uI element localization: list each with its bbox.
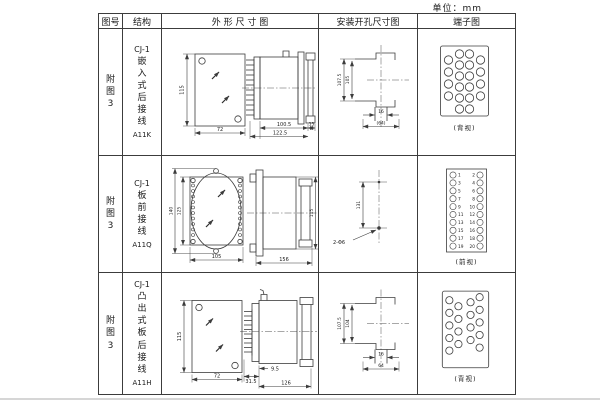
front-view-a11k (195, 54, 245, 126)
terminal-pins-a11q: 1234567891011121314151617181920 (450, 172, 483, 250)
terminal-cell-row3: (背视) (418, 273, 515, 394)
svg-text:15: 15 (458, 228, 464, 234)
front-terminals-a11q (192, 184, 242, 237)
svg-text:14: 14 (470, 220, 476, 226)
mounting-drawing-a11q: 131 2-Φ6 (319, 156, 417, 272)
dim-label: 2-Φ6 (333, 240, 345, 246)
fig-no-cell-row1: 附图3 (99, 29, 123, 156)
structure-cell-row1: CJ-1 嵌入式后接线 A11K (123, 29, 162, 156)
terminal-cell-row1: (背视) (418, 29, 515, 156)
svg-text:5: 5 (458, 189, 461, 195)
dim-label: 140 (169, 207, 175, 216)
fig-no-row2: 附图3 (106, 196, 116, 232)
svg-text:3: 3 (458, 181, 461, 187)
mounting-cell-row3: 107.5 104 16 64 (319, 273, 418, 394)
dim-label: 72 (217, 127, 223, 133)
dim-label: 16 (378, 109, 384, 115)
dim-label: 16 (378, 352, 384, 358)
mounting-cell-row2: 131 2-Φ6 (319, 156, 418, 273)
svg-text:4: 4 (472, 181, 475, 187)
dim-label: 126 (281, 381, 291, 387)
svg-text:8: 8 (472, 196, 475, 202)
front-view-a11h (192, 301, 242, 373)
svg-text:2: 2 (472, 173, 475, 179)
header-fig-no: 图号 (99, 14, 123, 29)
svg-text:11: 11 (458, 212, 464, 218)
fig-no-row1: 附图3 (106, 74, 116, 110)
outline-drawing-a11h: 115 72 (162, 273, 318, 394)
svg-text:9: 9 (458, 204, 461, 210)
fig-no-row3: 附图3 (106, 315, 116, 351)
outline-cell-row1: 115 72 (162, 29, 319, 156)
dimension-table: 图号 结构 外 形 尺 寸 图 安装开孔尺寸图 端子图 附图3 CJ-1 嵌入式… (98, 13, 516, 395)
dim-label: 156 (279, 257, 289, 263)
side-view-a11h (244, 290, 313, 367)
svg-text:20: 20 (470, 244, 476, 250)
terminal-block-a11k (441, 46, 489, 116)
terminal-cell-row2: 1234567891011121314151617181920 (前视) (418, 156, 515, 273)
dim-label: 125 (177, 207, 183, 216)
outline-drawing-a11q: 140 125 105 (162, 156, 318, 272)
mounting-drawing-a11k: 107.5 105 16 (64) (319, 29, 417, 155)
svg-text:13: 13 (458, 220, 464, 226)
dim-label: 115 (309, 209, 315, 218)
terminal-block-a11h (442, 291, 488, 368)
svg-text:19: 19 (458, 244, 464, 250)
code-label-row3: A11H (133, 379, 152, 387)
svg-text:12: 12 (470, 212, 476, 218)
structure-cell-row2: CJ-1 板前接线 A11Q (123, 156, 162, 273)
code-label-row2: A11Q (132, 241, 151, 249)
svg-text:17: 17 (458, 236, 464, 242)
terminal-diagram-a11k: (背视) (418, 29, 515, 155)
scanned-spec-page: 单位：mm 图号 结构 外 形 尺 寸 图 安装开孔尺寸图 端子图 附图3 CJ… (0, 0, 600, 400)
header-terminal: 端子图 (418, 14, 515, 29)
header-outline: 外 形 尺 寸 图 (162, 14, 319, 29)
structure-label-row3: 凸出式板后接线 (137, 291, 147, 376)
outline-cell-row3: 115 72 (162, 273, 319, 394)
terminal-diagram-a11h: (背视) (418, 273, 515, 394)
svg-text:10: 10 (470, 204, 476, 210)
svg-text:7: 7 (458, 196, 461, 202)
dim-label: 115 (177, 332, 183, 342)
view-label: (背视) (453, 123, 475, 132)
dim-label: 105 (212, 254, 222, 260)
dim-label: 115 (180, 85, 186, 95)
svg-text:6: 6 (472, 189, 475, 195)
dim-label: 100.5 (277, 122, 291, 128)
model-label-row1: CJ-1 (134, 45, 150, 54)
structure-label-row1: 嵌入式后接线 (137, 56, 147, 129)
dim-label: 107.5 (337, 317, 343, 330)
side-view-a11k (246, 51, 315, 124)
model-label-row2: CJ-1 (134, 179, 150, 188)
svg-text:1: 1 (458, 173, 461, 179)
dim-label: 105 (345, 76, 351, 85)
model-label-row3: CJ-1 (134, 280, 150, 289)
dim-label: (64) (376, 121, 385, 127)
view-label: (前视) (455, 257, 477, 266)
dim-label: 72 (214, 374, 220, 380)
front-view-a11q (190, 169, 243, 254)
outline-cell-row2: 140 125 105 (162, 156, 319, 273)
dim-label: 104 (345, 319, 351, 328)
outline-drawing-a11k: 115 72 (162, 29, 318, 155)
structure-label-row2: 板前接线 (137, 190, 147, 239)
dim-label: 64 (378, 363, 384, 369)
terminal-diagram-a11q: 1234567891011121314151617181920 (前视) (418, 156, 515, 272)
dim-label: 31.5 (245, 379, 256, 385)
fig-no-cell-row3: 附图3 (99, 273, 123, 394)
svg-text:16: 16 (470, 228, 476, 234)
header-structure: 结构 (123, 14, 162, 29)
header-mounting: 安装开孔尺寸图 (319, 14, 418, 29)
dim-label: 15 (309, 122, 315, 128)
fig-no-cell-row2: 附图3 (99, 156, 123, 273)
mounting-cell-row1: 107.5 105 16 (64) (319, 29, 418, 156)
dim-label: 9.5 (271, 367, 279, 373)
dim-label: 131 (356, 201, 362, 210)
svg-text:18: 18 (470, 236, 476, 242)
dim-label: 122.5 (273, 131, 287, 137)
view-label: (背视) (454, 374, 476, 383)
structure-cell-row3: CJ-1 凸出式板后接线 A11H (123, 273, 162, 394)
dim-label: 107.5 (337, 74, 343, 87)
code-label-row1: A11K (133, 131, 151, 139)
mounting-drawing-a11h: 107.5 104 16 64 (319, 273, 417, 394)
